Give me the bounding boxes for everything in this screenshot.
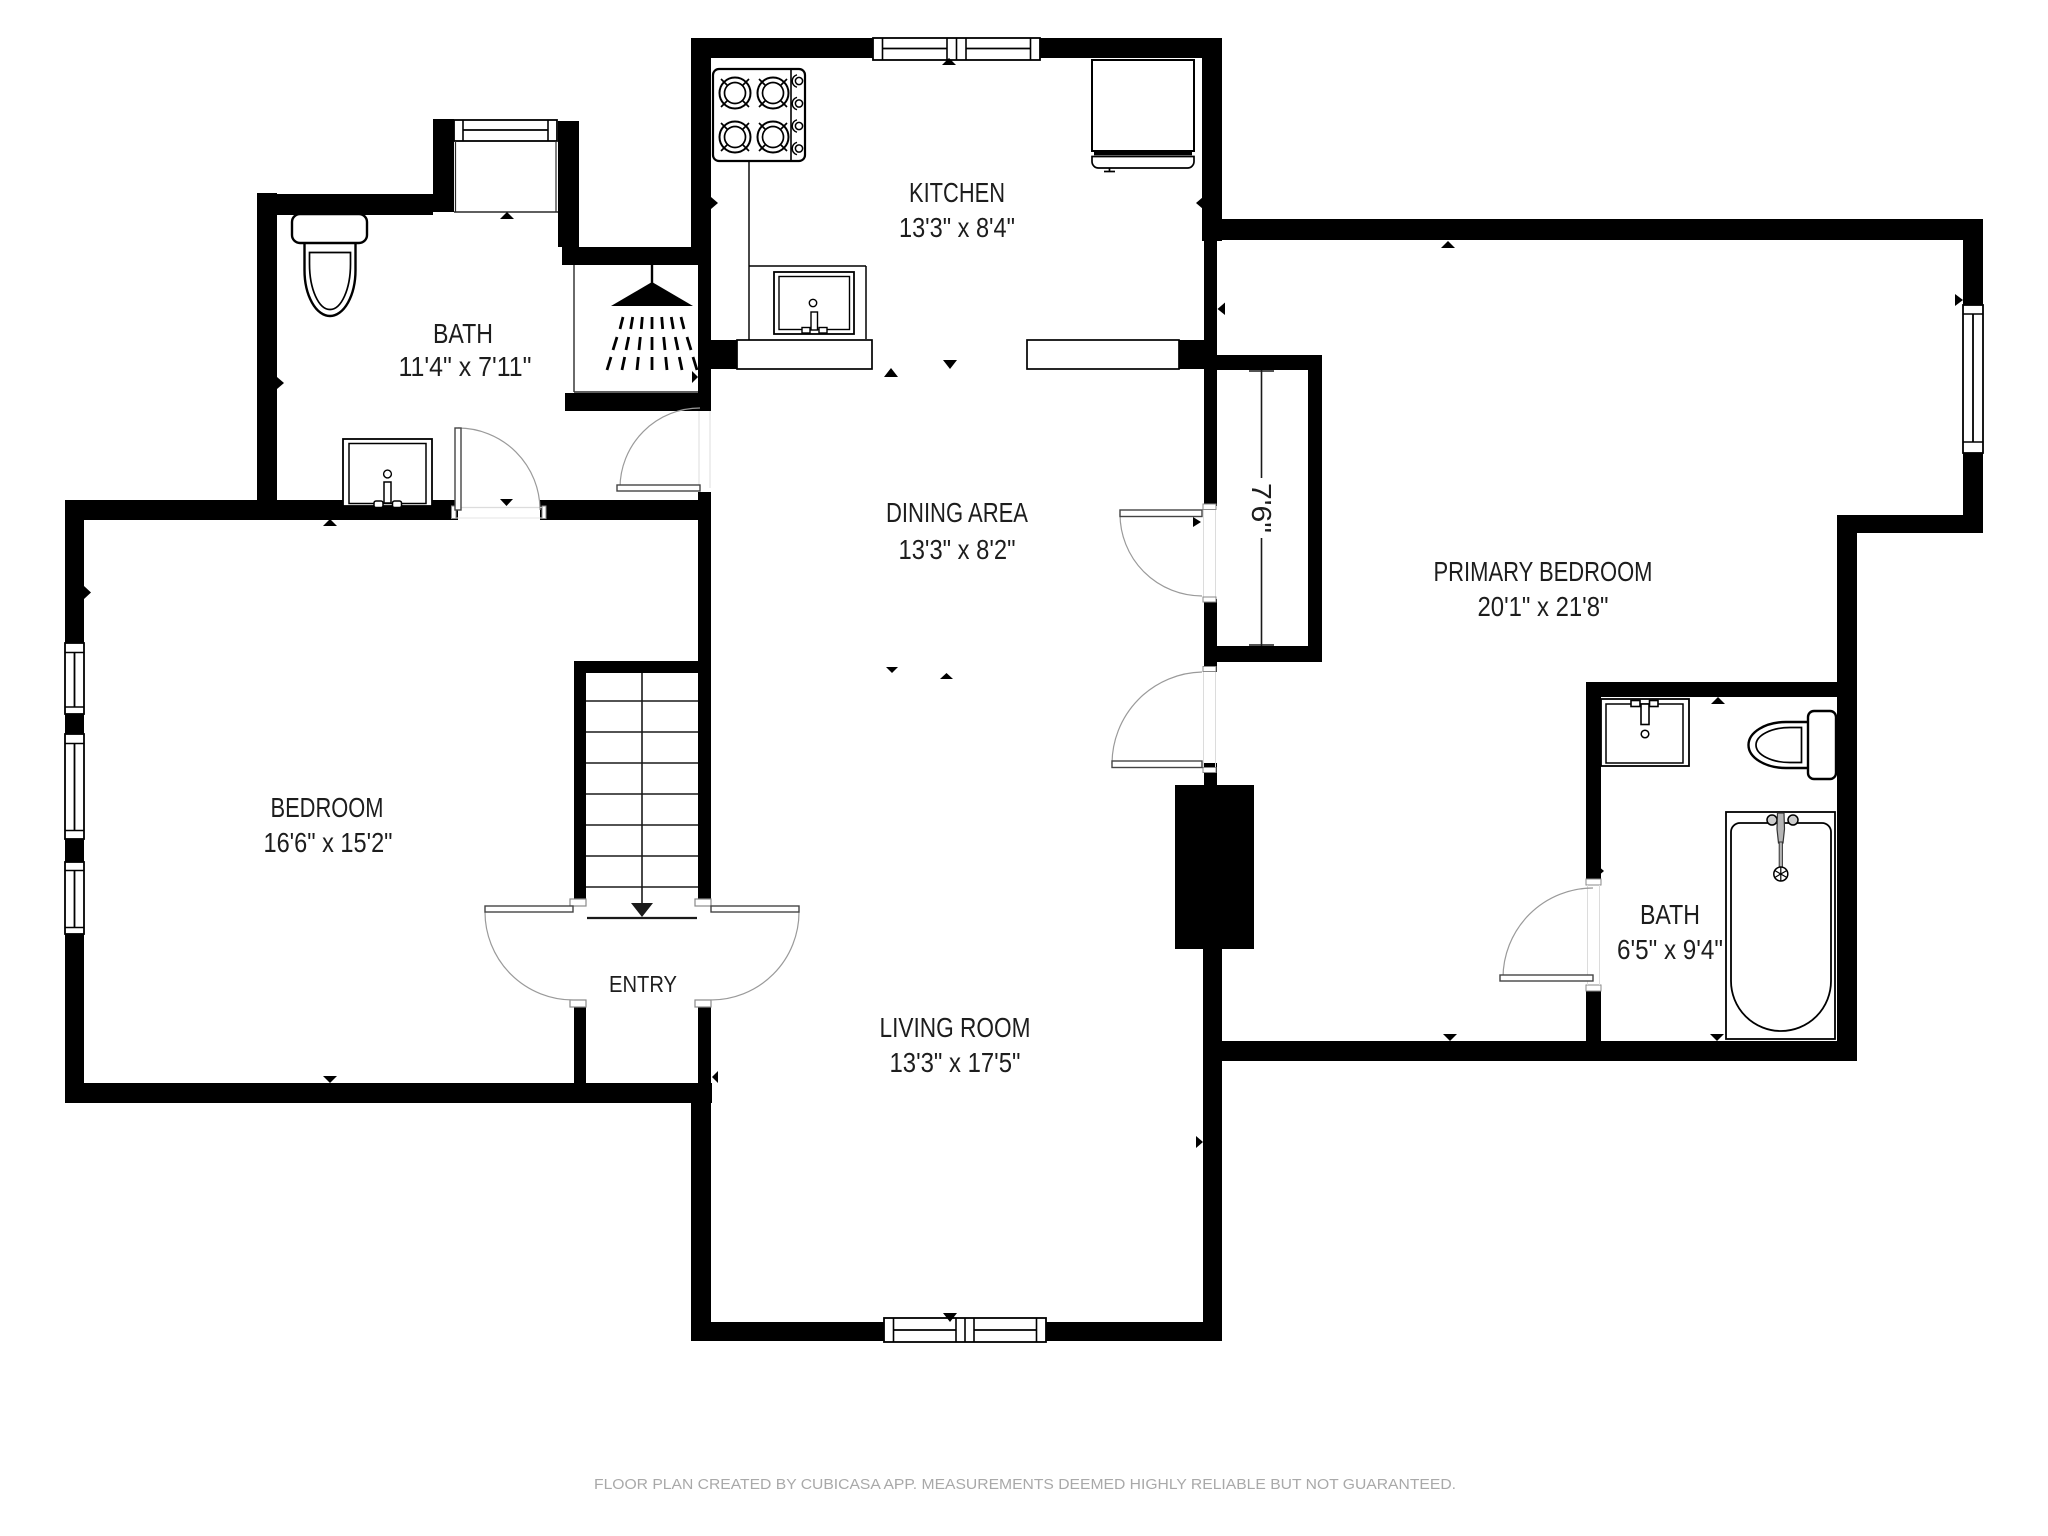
svg-text:13'3" x 17'5": 13'3" x 17'5" — [890, 1047, 1021, 1078]
svg-text:13'3" x 8'4": 13'3" x 8'4" — [899, 212, 1015, 243]
svg-text:16'6" x 15'2": 16'6" x 15'2" — [264, 827, 393, 858]
svg-text:PRIMARY BEDROOM: PRIMARY BEDROOM — [1434, 556, 1653, 587]
svg-text:DINING AREA: DINING AREA — [886, 497, 1029, 528]
svg-text:7'6": 7'6" — [1246, 483, 1277, 533]
svg-text:11'4" x 7'11": 11'4" x 7'11" — [399, 351, 532, 382]
svg-text:LIVING ROOM: LIVING ROOM — [880, 1012, 1031, 1043]
svg-text:13'3" x 8'2": 13'3" x 8'2" — [899, 534, 1016, 565]
svg-text:BEDROOM: BEDROOM — [271, 792, 384, 823]
svg-text:FLOOR PLAN CREATED BY CUBICASA: FLOOR PLAN CREATED BY CUBICASA APP. MEAS… — [594, 1476, 1456, 1493]
svg-text:20'1" x 21'8": 20'1" x 21'8" — [1478, 591, 1609, 622]
svg-text:6'5" x 9'4": 6'5" x 9'4" — [1617, 934, 1723, 965]
svg-text:KITCHEN: KITCHEN — [909, 177, 1005, 208]
svg-text:ENTRY: ENTRY — [609, 971, 677, 997]
svg-text:BATH: BATH — [433, 318, 493, 349]
svg-text:BATH: BATH — [1640, 899, 1700, 930]
